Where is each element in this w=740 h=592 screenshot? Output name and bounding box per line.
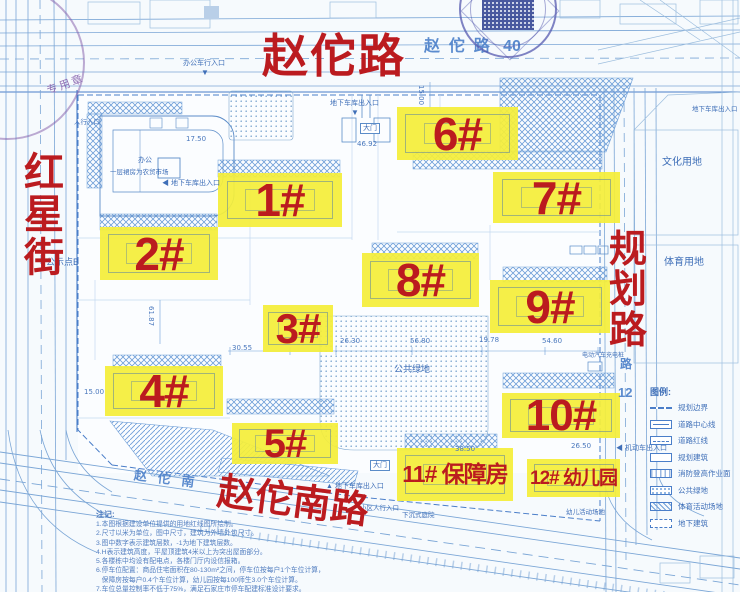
fire-symbol-icon	[650, 469, 672, 478]
site-label: 幼儿活动场地	[566, 509, 605, 516]
hongxing-char-2: 星	[24, 194, 64, 236]
site-label: 大门	[360, 123, 380, 134]
note-line: 2.尺寸以米为单位，图中尺寸，建筑为外墙外包尺寸。	[96, 529, 325, 538]
dimension-label: 26.30	[340, 337, 360, 345]
building-block-6: 6#	[397, 107, 518, 160]
site-label: 大门	[370, 460, 390, 471]
building-label: 5#	[264, 424, 307, 464]
green-symbol-icon	[650, 486, 672, 495]
underground-symbol-icon	[650, 519, 672, 528]
dimension-label: 17.50	[186, 135, 206, 143]
site-label: 公共绿地	[394, 365, 430, 375]
hongxing-char-3: 街	[24, 237, 64, 279]
building-label: 10#	[526, 394, 596, 438]
legend-item-label: 规划建筑	[678, 452, 708, 463]
site-label: ▼	[351, 109, 359, 118]
dimension-label: 54.60	[542, 337, 562, 345]
building-label: 12# 幼儿园	[530, 469, 617, 488]
hongxing-char-1: 红	[24, 152, 64, 194]
note-line: 6.停车位配置：商品住宅面积在80-130m²之间，停车位按每户1个车位计算，	[96, 566, 325, 575]
legend-item-sport: 体育活动场地	[650, 502, 731, 511]
redline-symbol-icon	[650, 436, 672, 445]
legend-item-label: 道路中心线	[678, 419, 716, 430]
site-label: 人行入口	[74, 119, 100, 126]
legend-item-boundary: 规划边界	[650, 403, 731, 412]
site-label: ▼	[201, 69, 209, 78]
building-block-3: 3#	[263, 305, 333, 352]
dimension-label: 46.92	[357, 140, 377, 148]
guihua-char-1: 规	[609, 230, 647, 270]
sport-symbol-icon	[650, 502, 672, 511]
note-line: 5.各楼栋中均设有配电点，各楼门厅内设信报箱。	[96, 557, 325, 566]
building-label: 6#	[433, 111, 482, 157]
legend-item-label: 消防登高作业面	[678, 468, 731, 479]
site-label: 一层裙房为农贸市场	[110, 169, 169, 176]
legend-item-label: 规划边界	[678, 402, 708, 413]
dimension-label: 15.00	[84, 388, 104, 396]
boundary-symbol-icon	[650, 407, 672, 409]
legend-item-centerline: 道路中心线	[650, 420, 731, 429]
site-label: 电动汽车充电桩	[582, 353, 624, 360]
building-label: 3#	[276, 308, 321, 350]
building-label: 7#	[532, 175, 581, 221]
building-label: 9#	[525, 284, 574, 330]
building-block-4: 4#	[105, 366, 223, 416]
dimension-label: 15.00	[417, 85, 425, 105]
legend-item-underground: 地下建筑	[650, 519, 731, 528]
building-block-12: 12# 幼儿园	[527, 459, 620, 497]
dimension-label: 38.50	[455, 445, 475, 453]
legend-item-redline: 道路红线	[650, 436, 731, 445]
site-label: 下沉式庭院	[402, 512, 435, 519]
stamp-qr-code	[482, 0, 534, 30]
note-line: 保障房按每户0.4个车位计算，幼儿园按每100师生3.0个车位计算。	[96, 576, 325, 585]
dimension-label: 26.50	[571, 442, 591, 450]
street-name-hongxing-street: 红 星 街	[24, 152, 64, 279]
site-label: 文化用地	[662, 157, 702, 168]
legend-item-label: 地下建筑	[678, 518, 708, 529]
legend: 图例: 规划边界道路中心线道路红线规划建筑消防登高作业面公共绿地体育活动场地地下…	[650, 385, 731, 535]
site-label: 办公	[138, 157, 152, 165]
building-block-5: 5#	[232, 423, 338, 464]
site-plan-canvas: 赵 佗 路 40 赵 佗 南 路 12 1#2#3#4#5#6#7#8#9#10…	[0, 0, 740, 592]
guihua-char-2: 划	[609, 270, 647, 310]
dimension-label: 61.87	[147, 306, 155, 326]
centerline-symbol-icon	[650, 420, 672, 429]
dimension-label: 30.55	[232, 344, 252, 352]
legend-item-label: 公共绿地	[678, 485, 708, 496]
note-line: 3.图中数字表示建筑层数，-1为地下建筑层数。	[96, 539, 325, 548]
legend-item-fire: 消防登高作业面	[650, 469, 731, 478]
building-symbol-icon	[650, 453, 672, 462]
note-line: 4.H表示建筑高度，平屋顶建筑4米以上为突出屋面部分。	[96, 548, 325, 557]
building-block-1: 1#	[218, 173, 342, 227]
building-label: 8#	[396, 257, 445, 303]
site-label: 地下车库出入口	[692, 106, 738, 113]
site-label: 体育用地	[664, 257, 704, 268]
building-block-9: 9#	[490, 280, 610, 333]
building-label: 4#	[139, 368, 188, 414]
legend-item-label: 体育活动场地	[678, 501, 723, 512]
building-label: 1#	[255, 177, 304, 223]
dimension-label: 56.80	[410, 337, 430, 345]
site-label: ◀ 地下车库出入口	[162, 180, 220, 188]
building-block-11: 11# 保障房	[397, 448, 513, 501]
legend-item-label: 道路红线	[678, 435, 708, 446]
legend-item-building: 规划建筑	[650, 453, 731, 462]
street-name-zhaotuo-road: 赵佗路	[262, 33, 406, 79]
legend-item-green: 公共绿地	[650, 486, 731, 495]
dimension-label: 19.78	[479, 336, 499, 344]
building-block-10: 10#	[502, 393, 620, 438]
building-block-8: 8#	[362, 253, 479, 307]
building-label: 11# 保障房	[402, 463, 508, 486]
building-block-2: 2#	[100, 227, 218, 280]
building-label: 2#	[134, 231, 183, 277]
road-number-12: 12	[618, 385, 632, 400]
street-name-guihua-road: 规 划 路	[609, 230, 647, 351]
legend-title: 图例:	[650, 385, 731, 398]
site-label: 办公车行入口	[183, 60, 225, 68]
guihua-char-3: 路	[609, 311, 647, 351]
building-block-7: 7#	[493, 172, 620, 223]
site-label: 地下车库出入口	[330, 100, 379, 108]
note-line: 7.车位总量控制率不低于75%，满足石家庄市停车配建标准设计要求。	[96, 585, 325, 592]
